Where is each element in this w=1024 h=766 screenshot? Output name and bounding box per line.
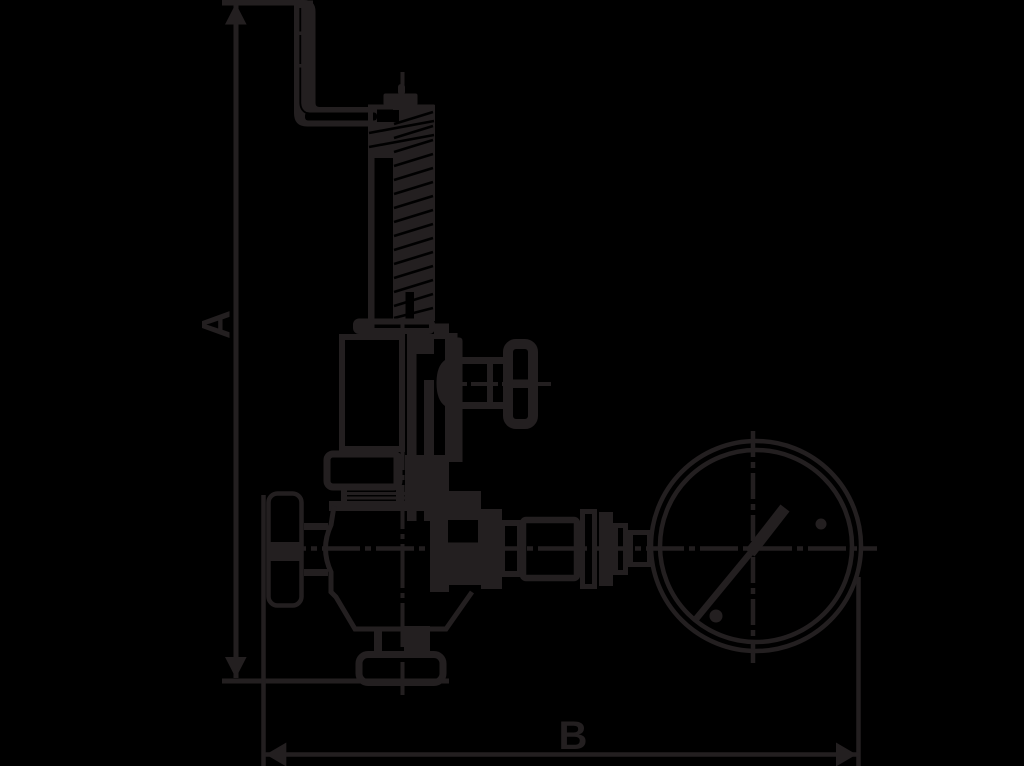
svg-text:B: B [559, 714, 588, 758]
svg-text:A: A [195, 310, 239, 339]
